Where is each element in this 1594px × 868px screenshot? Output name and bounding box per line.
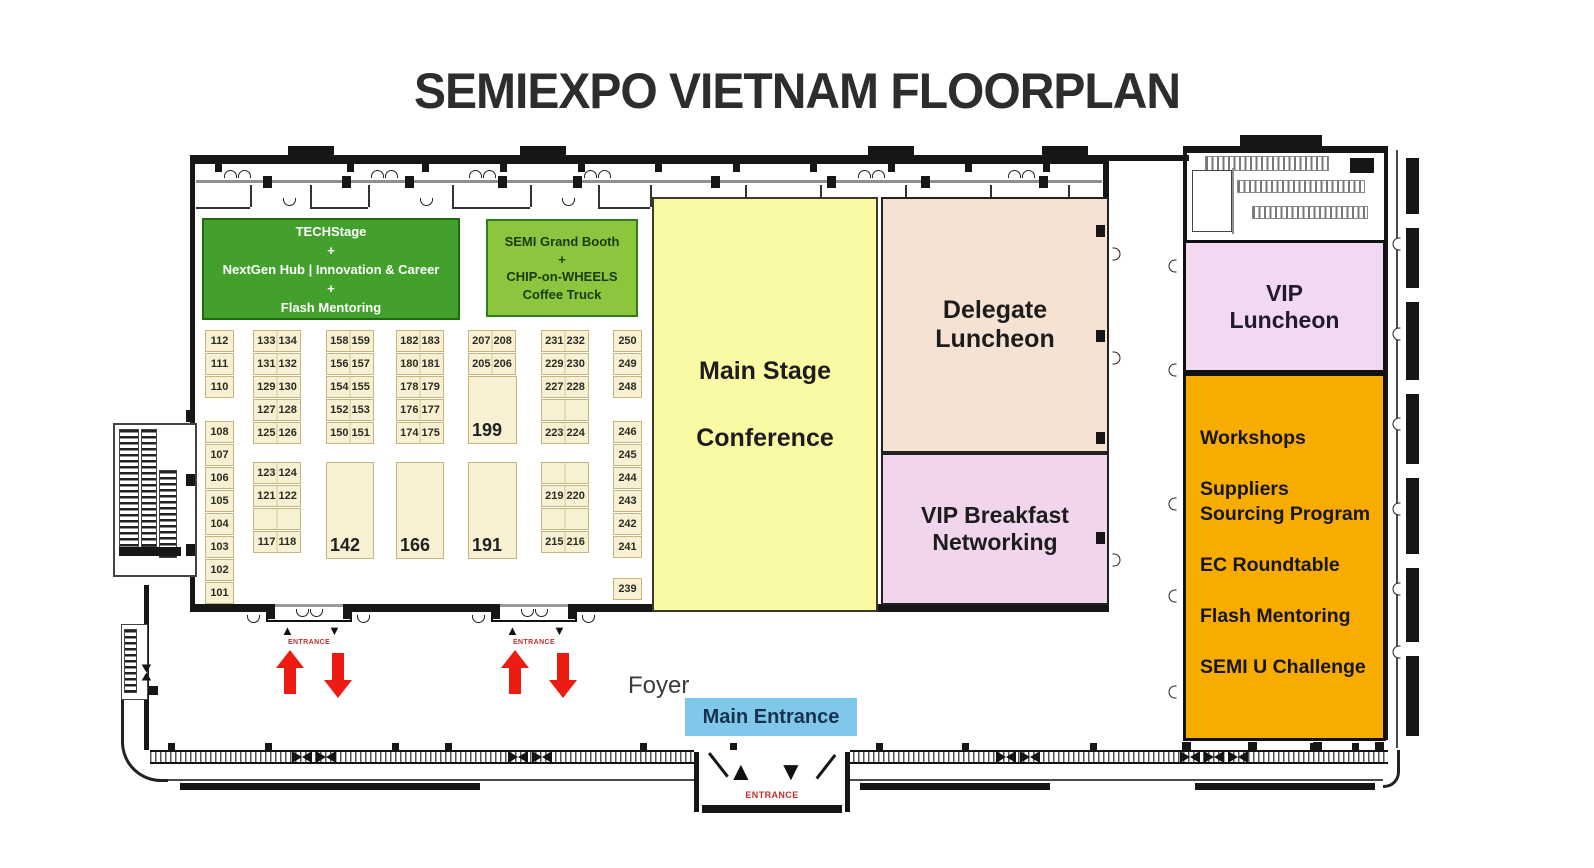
zone-label: NextGen Hub | Innovation & Career xyxy=(223,260,440,279)
booth-cell: 223 224 xyxy=(541,422,589,444)
partition xyxy=(598,185,600,207)
door-icon xyxy=(1169,364,1177,377)
door-icon xyxy=(420,198,433,206)
double-door-icon xyxy=(296,609,323,617)
wall-segment xyxy=(1406,568,1419,642)
zone-vip-breakfast-networking: VIP Breakfast Networking xyxy=(881,453,1109,605)
booth-column: 219 220215 216 xyxy=(541,462,589,553)
restroom-fixtures xyxy=(1252,206,1368,219)
booth-cell: 108 xyxy=(205,421,234,443)
booth-cell xyxy=(541,508,589,530)
wall-segment xyxy=(190,604,267,612)
pillar xyxy=(498,176,507,188)
booth-cell: 229 230 xyxy=(541,353,589,375)
program-item: SEMI U Challenge xyxy=(1200,655,1366,680)
wall-segment xyxy=(1042,146,1088,156)
partition xyxy=(196,207,250,209)
booth-cell: 103 xyxy=(205,536,234,558)
booth-cell: 112 xyxy=(205,330,234,352)
zone-label: SEMI Grand Booth xyxy=(505,233,620,251)
booth-column: 207 208205 206 xyxy=(468,330,516,375)
zone-techstage: TECHStage+NextGen Hub | Innovation & Car… xyxy=(202,218,460,320)
door-icon xyxy=(1169,686,1177,699)
wall-segment xyxy=(1406,478,1419,554)
pillar xyxy=(500,163,507,172)
booth-cell: 150 151 xyxy=(326,422,374,444)
door-icon xyxy=(562,198,575,206)
pillar xyxy=(1096,432,1105,444)
pillar xyxy=(888,163,895,172)
pillar xyxy=(342,176,351,188)
door-jamb xyxy=(266,604,275,619)
pillar xyxy=(263,176,272,188)
booth-cell: 176 177 xyxy=(396,399,444,421)
booth-cell: 219 220 xyxy=(541,485,589,507)
zone-label: + xyxy=(327,279,335,298)
zone-delegate-luncheon: Delegate Luncheon xyxy=(881,197,1109,453)
outer-corner xyxy=(121,700,168,782)
booth-cell-166: 166 xyxy=(396,462,444,559)
revolving-door-icon xyxy=(292,751,312,764)
pillar xyxy=(215,163,222,172)
outer-edge xyxy=(1195,783,1375,790)
booth-cell: 215 216 xyxy=(541,531,589,553)
door-icon xyxy=(283,198,296,206)
pillar xyxy=(1043,163,1050,172)
pillar xyxy=(1096,330,1105,342)
booth-number: 199 xyxy=(472,420,502,441)
pillar xyxy=(711,176,720,188)
pillar xyxy=(1310,743,1317,752)
booth-cell: 107 xyxy=(205,444,234,466)
pillar xyxy=(921,176,930,188)
revolving-door-icon xyxy=(1180,751,1200,764)
stairs-block xyxy=(113,423,197,577)
zone-label: CHIP-on-WHEELS xyxy=(506,268,617,286)
partition xyxy=(530,185,532,207)
booth-cell: 123 124 xyxy=(253,462,301,484)
zone-label: Delegate Luncheon xyxy=(910,296,1080,354)
pillar xyxy=(573,176,582,188)
booth-cell: 131 132 xyxy=(253,353,301,375)
zone-vip-luncheon: VIP Luncheon xyxy=(1183,240,1386,373)
booth-column: 246245244243242241 xyxy=(613,421,642,558)
restroom-stalls xyxy=(1205,156,1329,171)
door-jamb xyxy=(343,604,352,619)
wall-segment xyxy=(848,750,1388,764)
booth-cell: 106 xyxy=(205,467,234,489)
booth-cell: 243 xyxy=(613,490,642,512)
program-item: Suppliers Sourcing Program xyxy=(1200,477,1375,527)
outer-edge xyxy=(860,783,1050,790)
zone-semi-grand-booth: SEMI Grand Booth+CHIP-on-WHEELSCoffee Tr… xyxy=(486,219,638,317)
booth-column: 231 232229 230227 228223 224 xyxy=(541,330,589,444)
stairs-icon xyxy=(141,429,157,547)
double-door-icon xyxy=(858,170,885,178)
wall-segment xyxy=(288,146,334,156)
wall-segment xyxy=(1406,656,1419,736)
door-icon xyxy=(1393,646,1401,659)
revolving-door-icon xyxy=(141,665,151,681)
revolving-door-icon xyxy=(508,751,528,764)
zone-label: Main Stage xyxy=(699,357,831,386)
double-door-icon xyxy=(1008,170,1035,178)
wall-segment xyxy=(1240,135,1322,147)
booth-cell xyxy=(253,508,301,530)
door-icon xyxy=(1113,248,1121,261)
booth-cell: 104 xyxy=(205,513,234,535)
outer-edge xyxy=(165,779,694,781)
wall-segment xyxy=(352,604,491,612)
booth-cell: 156 157 xyxy=(326,353,374,375)
booth-cell: 180 181 xyxy=(396,353,444,375)
door-icon xyxy=(1393,583,1401,596)
page-title: SEMIEXPO VIETNAM FLOORPLAN xyxy=(0,63,1594,121)
wall-segment xyxy=(1406,394,1419,464)
pillar xyxy=(1096,225,1105,237)
partition xyxy=(368,185,370,207)
booth-column: 182 183180 181178 179176 177174 175 xyxy=(396,330,444,444)
pillar xyxy=(265,743,272,752)
double-door-icon xyxy=(584,170,611,178)
booth-column: 133 134131 132129 130127 128125 126 xyxy=(253,330,301,444)
door-icon xyxy=(357,615,370,623)
booth-cell: 246 xyxy=(613,421,642,443)
wall-segment xyxy=(1185,146,1388,153)
wall-segment xyxy=(148,686,158,695)
pillar xyxy=(655,163,662,172)
pillar xyxy=(1352,743,1359,752)
booth-cell: 129 130 xyxy=(253,376,301,398)
wall-segment xyxy=(845,752,850,812)
pillar xyxy=(876,743,883,752)
door-icon xyxy=(247,615,260,623)
entrance-label: ENTRANCE xyxy=(722,790,822,800)
revolving-door-icon xyxy=(1020,751,1040,764)
partition xyxy=(452,207,530,209)
pillar xyxy=(405,176,414,188)
double-door-icon xyxy=(469,170,496,178)
booth-cell: 250 xyxy=(613,330,642,352)
revolving-door-icon xyxy=(1228,751,1248,764)
booth-cell: 102 xyxy=(205,559,234,581)
door-icon xyxy=(582,615,595,623)
booth-column: 250249248 xyxy=(613,330,642,398)
booth-cell: 245 xyxy=(613,444,642,466)
partition xyxy=(310,185,312,207)
corridor-wall xyxy=(196,180,1102,183)
booth-cell: 127 128 xyxy=(253,399,301,421)
restroom-cabin xyxy=(1192,170,1232,232)
up-arrow-icon: ▲ xyxy=(281,624,294,637)
zone-label: VIP Luncheon xyxy=(1222,280,1347,334)
pillar xyxy=(1090,743,1097,752)
booth-cell-199: 199 xyxy=(468,376,517,444)
booth-cell: 227 228 xyxy=(541,376,589,398)
foyer-label: Foyer xyxy=(628,672,689,700)
program-item: EC Roundtable xyxy=(1200,553,1340,578)
entrance-label: ENTRANCE xyxy=(260,639,358,646)
door-jamb xyxy=(491,604,500,619)
pillar xyxy=(965,163,972,172)
door-leaf-icon xyxy=(816,754,837,779)
floorplan-page: SEMIEXPO VIETNAM FLOORPLAN xyxy=(0,0,1594,868)
booth-cell-142: 142 xyxy=(326,462,374,559)
booth-column: 112111110 xyxy=(205,330,234,398)
closet-fixture xyxy=(124,629,137,693)
stairs-icon xyxy=(159,470,177,558)
booth-cell: 182 183 xyxy=(396,330,444,352)
door-icon xyxy=(472,615,485,623)
partition xyxy=(452,185,454,207)
outer-edge xyxy=(180,783,480,790)
wall-segment xyxy=(694,752,699,812)
pillar xyxy=(186,474,195,486)
up-arrow-icon: ▲ xyxy=(506,624,519,637)
booth-column: 158 159156 157154 155152 153150 151 xyxy=(326,330,374,444)
booth-cell-191: 191 xyxy=(468,462,517,559)
zone-programs: WorkshopsSuppliers Sourcing ProgramEC Ro… xyxy=(1183,373,1386,741)
door-icon xyxy=(1113,554,1121,567)
booth-cell: 121 122 xyxy=(253,485,301,507)
main-entrance-label: Main Entrance xyxy=(685,698,857,736)
pillar xyxy=(827,176,836,188)
zone-label: Conference xyxy=(696,424,834,453)
booth-column: 108107106105104103102101 xyxy=(205,421,234,604)
outer-corner xyxy=(1383,750,1400,788)
zone-main-stage-conference: Main StageConference xyxy=(652,197,878,612)
zone-label: Coffee Truck xyxy=(523,286,602,304)
door-icon xyxy=(1393,418,1401,431)
pillar xyxy=(810,163,817,172)
pillar xyxy=(1096,532,1105,544)
pillar xyxy=(168,743,175,752)
service-closet xyxy=(121,624,148,700)
booth-number: 142 xyxy=(330,535,360,556)
door-icon xyxy=(1169,260,1177,273)
pillar xyxy=(347,163,354,172)
pillar xyxy=(186,544,195,556)
double-door-icon xyxy=(224,170,251,178)
down-arrow-icon: ▼ xyxy=(778,758,804,784)
wall-segment xyxy=(1350,158,1374,173)
booth-cell: 205 206 xyxy=(468,353,516,375)
booth-cell: 248 xyxy=(613,376,642,398)
booth-cell: 111 xyxy=(205,353,234,375)
door-icon xyxy=(1113,352,1121,365)
revolving-door-icon xyxy=(532,751,552,764)
booth-number: 191 xyxy=(472,535,502,556)
booth-cell xyxy=(541,462,589,484)
pillar xyxy=(962,743,969,752)
partition xyxy=(1232,168,1234,234)
door-icon xyxy=(1169,590,1177,603)
door-leaf-icon xyxy=(708,752,729,777)
booth-cell: 154 155 xyxy=(326,376,374,398)
up-arrow-icon: ▲ xyxy=(728,758,754,784)
booth-cell: 125 126 xyxy=(253,422,301,444)
booth-cell xyxy=(541,399,589,421)
zone-label: TECHStage xyxy=(296,222,367,241)
booth-cell: 178 179 xyxy=(396,376,444,398)
booth-cell: 117 118 xyxy=(253,531,301,553)
partition xyxy=(250,185,252,207)
wall-segment xyxy=(520,146,566,156)
outer-edge xyxy=(848,779,1383,781)
down-arrow-icon: ▼ xyxy=(328,624,341,637)
partition xyxy=(310,207,368,209)
main-entrance-text: Main Entrance xyxy=(703,706,840,729)
partition xyxy=(598,207,650,209)
main-entrance-vestibule: ▲ ▼ ENTRANCE xyxy=(694,750,850,814)
pillar xyxy=(186,410,195,422)
wall-segment xyxy=(1406,228,1419,288)
down-arrow-icon: ▼ xyxy=(553,624,566,637)
booth-cell: 242 xyxy=(613,513,642,535)
door-icon xyxy=(1393,503,1401,516)
booth-cell: 158 159 xyxy=(326,330,374,352)
wall-segment xyxy=(150,750,695,764)
program-item: Workshops xyxy=(1200,426,1306,451)
booth-cell: 231 232 xyxy=(541,330,589,352)
pillar xyxy=(1039,176,1048,188)
zone-label: + xyxy=(558,251,566,269)
wall-segment xyxy=(1103,155,1189,161)
revolving-door-icon xyxy=(316,751,336,764)
pillar xyxy=(733,163,740,172)
zone-label: Flash Mentoring xyxy=(281,298,381,317)
booth-cell: 207 208 xyxy=(468,330,516,352)
double-door-icon xyxy=(371,170,398,178)
pillar xyxy=(445,743,452,752)
booth-column: 123 124121 122117 118 xyxy=(253,462,301,553)
booth-column: 239 xyxy=(613,578,642,600)
wall-segment xyxy=(119,547,181,556)
stairs-icon xyxy=(119,429,139,553)
door-icon xyxy=(1393,238,1401,251)
door-icon xyxy=(1169,498,1177,511)
booth-number: 166 xyxy=(400,535,430,556)
entrance-up-arrow-icon xyxy=(276,650,304,695)
zone-label: VIP Breakfast Networking xyxy=(895,502,1095,556)
door-jamb xyxy=(568,604,577,619)
wall-segment xyxy=(868,146,914,156)
revolving-door-icon xyxy=(996,751,1016,764)
double-door-icon xyxy=(521,609,548,617)
booth-cell: 152 153 xyxy=(326,399,374,421)
program-item: Flash Mentoring xyxy=(1200,604,1351,629)
door-icon xyxy=(1393,328,1401,341)
restroom-fixtures xyxy=(1237,180,1365,193)
booth-cell: 101 xyxy=(205,582,234,604)
booth-cell: 244 xyxy=(613,467,642,489)
revolving-door-icon xyxy=(1204,751,1224,764)
booth-cell: 110 xyxy=(205,376,234,398)
booth-cell: 241 xyxy=(613,536,642,558)
booth-cell: 133 134 xyxy=(253,330,301,352)
booth-cell: 105 xyxy=(205,490,234,512)
entrance-up-arrow-icon xyxy=(501,650,529,695)
pillar xyxy=(392,743,399,752)
wall-segment xyxy=(1406,302,1419,380)
booth-cell: 249 xyxy=(613,353,642,375)
pillar xyxy=(640,743,647,752)
entrance-label: ENTRANCE xyxy=(485,639,583,646)
entrance-down-arrow-icon xyxy=(324,653,352,698)
booth-cell: 239 xyxy=(613,578,642,600)
zone-label: + xyxy=(327,241,335,260)
booth-cell: 174 175 xyxy=(396,422,444,444)
wall-segment xyxy=(1406,158,1419,214)
pillar xyxy=(422,163,429,172)
entrance-mat xyxy=(702,805,842,813)
entrance-down-arrow-icon xyxy=(549,653,577,698)
